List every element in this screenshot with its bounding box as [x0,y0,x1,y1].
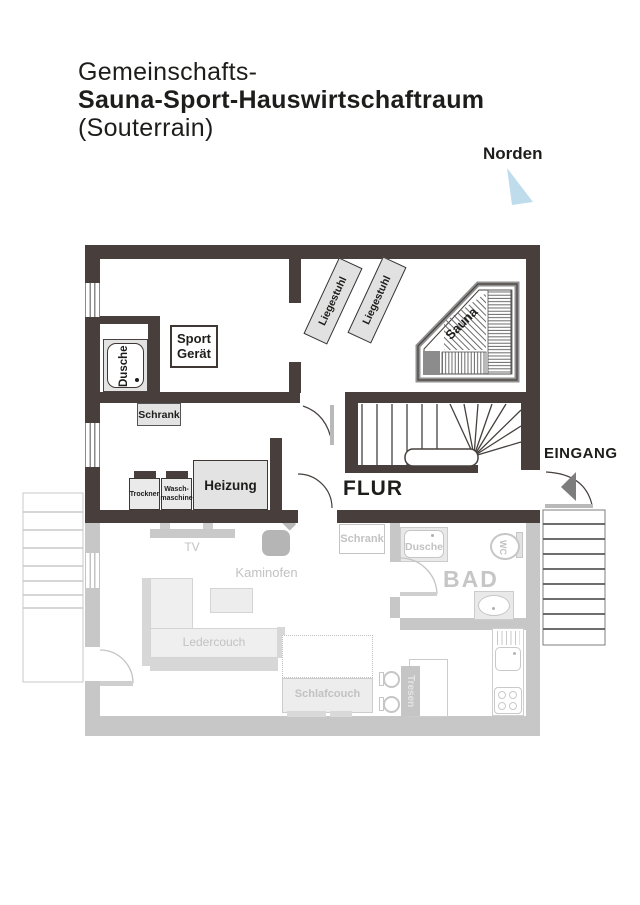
sauna-cabin-icon [418,284,517,380]
door-arc [303,406,332,443]
door-arc [400,558,437,594]
eingang-label: EINGANG [544,445,618,462]
door-sill [545,504,593,508]
door-arc [298,474,332,508]
door-leaf [100,681,133,686]
door-leaf [400,592,437,596]
staircase-interior-icon [362,404,521,466]
door-leaf [330,405,334,445]
staircase-exterior-left-icon [23,493,83,682]
floorplan-page: Gemeinschafts- Sauna-Sport-Hauswirtschaf… [0,0,640,905]
door-arcs-lower [100,558,437,683]
door-arc [100,650,133,683]
staircase-exterior-right-icon [543,510,605,645]
flur-room-label: FLUR [343,477,403,501]
